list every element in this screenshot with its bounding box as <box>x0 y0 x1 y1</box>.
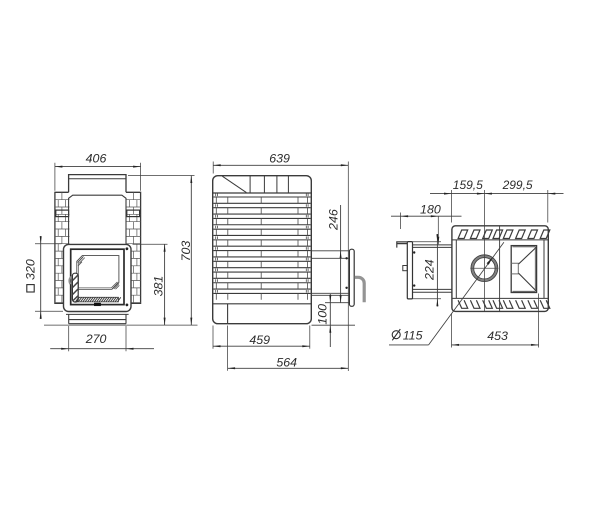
svg-text:381: 381 <box>151 276 165 297</box>
svg-text:159,5: 159,5 <box>453 178 483 192</box>
svg-text:246: 246 <box>326 209 340 231</box>
svg-text:115: 115 <box>403 329 423 343</box>
svg-text:703: 703 <box>179 241 193 262</box>
svg-text:564: 564 <box>276 355 297 369</box>
svg-text:180: 180 <box>420 202 441 216</box>
svg-text:639: 639 <box>269 151 290 165</box>
svg-text:224: 224 <box>423 259 437 281</box>
svg-text:270: 270 <box>85 332 107 346</box>
svg-text:406: 406 <box>86 152 107 166</box>
svg-text:100: 100 <box>315 304 329 325</box>
svg-text:299,5: 299,5 <box>502 178 533 192</box>
svg-text:459: 459 <box>249 333 270 347</box>
svg-text:453: 453 <box>487 329 508 343</box>
svg-text:320: 320 <box>23 259 37 280</box>
